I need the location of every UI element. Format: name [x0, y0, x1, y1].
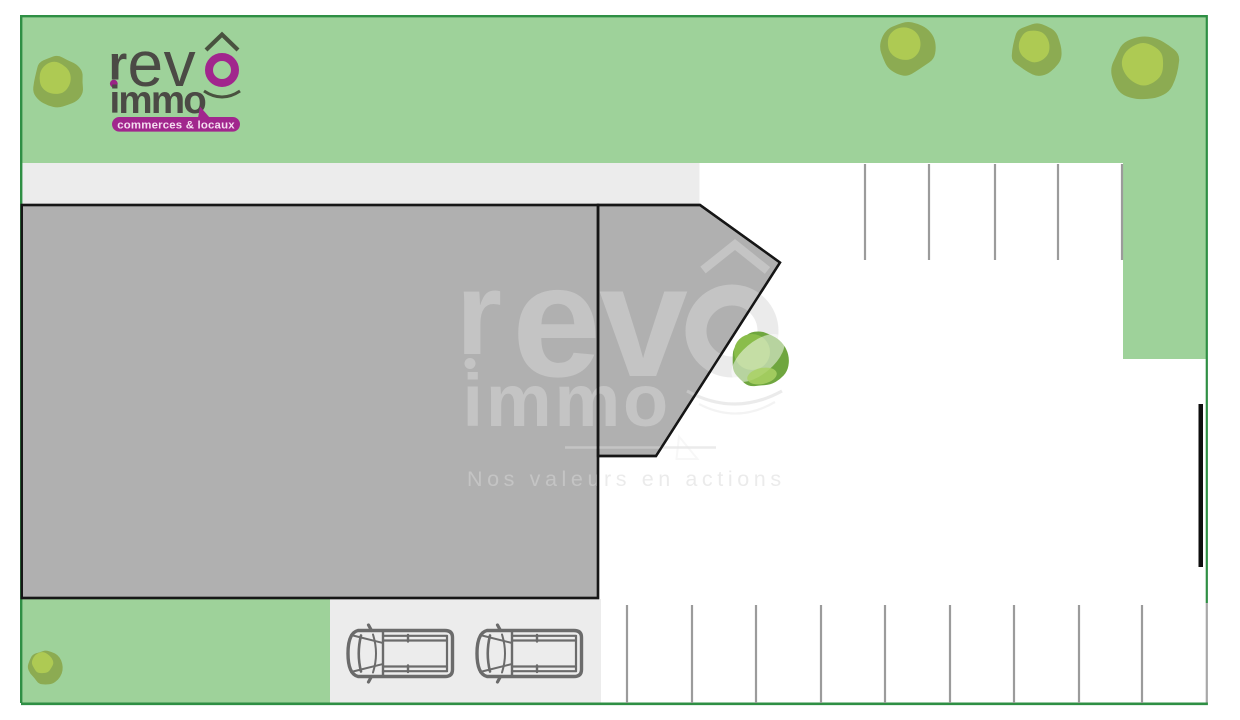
- svg-text:immo: immo: [110, 79, 207, 122]
- svg-text:immo: immo: [463, 359, 672, 442]
- svg-text:Nos valeurs en actions: Nos valeurs en actions: [467, 467, 786, 491]
- svg-text:commerces & locaux: commerces & locaux: [117, 120, 235, 132]
